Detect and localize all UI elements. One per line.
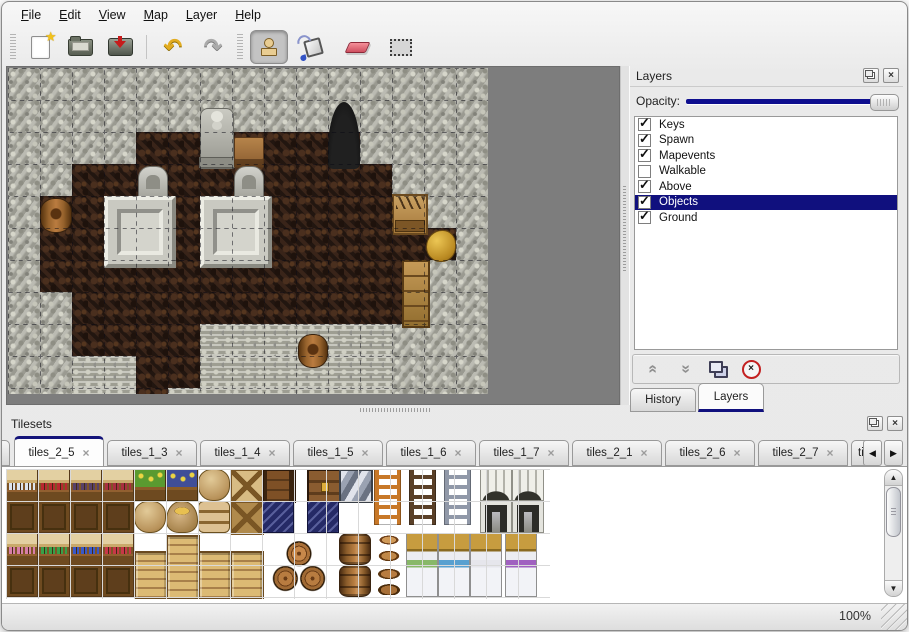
map-tile-stone-wall[interactable] (456, 100, 488, 132)
map-tile-dark-floor[interactable] (136, 292, 168, 324)
map-tile-dark-floor[interactable] (136, 356, 168, 388)
palette-tile-ladder[interactable] (374, 469, 401, 525)
map-tile-stone-wall[interactable] (40, 132, 72, 164)
palette-tile-archtop[interactable] (512, 469, 544, 501)
map-tile-dark-floor[interactable] (104, 292, 136, 324)
map-tile-stone-rubble[interactable] (328, 356, 360, 388)
lower-layer-button[interactable]: » (673, 358, 697, 380)
map-object-barrel[interactable] (298, 334, 329, 368)
tileset-tab-tiles_2_5[interactable]: tiles_2_5× (14, 436, 104, 466)
map-tile-stone-wall[interactable] (424, 132, 456, 164)
map-tile-stone-wall[interactable] (8, 292, 40, 324)
map-object-tombslab[interactable] (104, 196, 176, 268)
map-object-headstone[interactable] (234, 166, 265, 200)
tab-label: tiles_2_5 (28, 447, 74, 459)
map-tile-stone-rubble[interactable] (168, 388, 200, 394)
map-tile-stone-wall[interactable] (8, 324, 40, 356)
tilesets-panel-title: Tilesets (11, 417, 52, 431)
map-tile-stone-wall[interactable] (424, 324, 456, 356)
tileset-tab-tiles_1_6[interactable]: tiles_1_6× (386, 440, 476, 466)
map-tile-dark-floor[interactable] (136, 324, 168, 356)
palette-tile-navy[interactable] (307, 501, 339, 533)
palette-tile-shelf[interactable] (70, 533, 102, 597)
stamp-tool-button[interactable] (250, 30, 288, 64)
toolbar: ★↶↷ (2, 28, 907, 66)
layer-visibility-checkbox[interactable]: ✓ (638, 196, 651, 209)
palette-tile-crate[interactable] (198, 551, 232, 599)
layer-row-walkable[interactable]: Walkable (635, 164, 897, 180)
map-tile-stone-rubble[interactable] (296, 388, 328, 394)
map-tile-dark-floor[interactable] (136, 388, 168, 394)
tab-close-icon[interactable]: × (734, 447, 741, 459)
palette-tile-pyramid[interactable] (268, 536, 330, 595)
map-tile-stone-wall[interactable] (456, 388, 488, 394)
palette-tile-shelf[interactable] (6, 533, 38, 597)
tileset-tab-tiles_2_7[interactable]: tiles_2_7× (758, 440, 848, 466)
map-tile-dark-floor[interactable] (168, 324, 200, 356)
map-tile-stone-wall[interactable] (40, 100, 72, 132)
zoom-level: 100% (839, 609, 871, 623)
map-tile-dark-floor[interactable] (168, 292, 200, 324)
map-tile-dark-floor[interactable] (104, 164, 136, 196)
stamp-icon (261, 38, 277, 56)
map-tile-dark-floor[interactable] (360, 228, 392, 260)
map-tile-stone-wall[interactable] (328, 68, 360, 100)
map-tile-stone-wall[interactable] (424, 196, 456, 228)
tab-label: tiles_2_7 (772, 447, 818, 459)
opacity-slider-handle[interactable] (870, 94, 899, 111)
map-tile-stone-wall[interactable] (104, 132, 136, 164)
map-object-tombslab[interactable] (200, 196, 272, 268)
map-tile-stone-wall[interactable] (392, 388, 424, 394)
map-object-headstone[interactable] (138, 166, 169, 200)
tileset-tab-tiles_1_3[interactable]: tiles_1_3× (107, 440, 197, 466)
map-tile-stone-wall[interactable] (8, 388, 40, 394)
map-tile-stone-wall[interactable] (232, 68, 264, 100)
map-tile-stone-rubble[interactable] (264, 356, 296, 388)
resize-grip[interactable] (881, 604, 907, 630)
scroll-up-button[interactable]: ▲ (885, 470, 902, 486)
layer-row-keys[interactable]: ✓Keys (635, 117, 897, 133)
palette-tile-pots[interactable] (374, 533, 404, 595)
palette-tile-chestfront[interactable] (307, 469, 341, 503)
palette-tile-archdoor[interactable] (480, 501, 512, 533)
map-tile-stone-rubble[interactable] (360, 356, 392, 388)
map-tile-stone-wall[interactable] (424, 68, 456, 100)
map-tile-dark-floor[interactable] (72, 228, 104, 260)
layer-row-mapevents[interactable]: ✓Mapevents (635, 148, 897, 164)
close-panel-button[interactable]: × (883, 68, 899, 83)
map-tile-dark-floor[interactable] (200, 292, 232, 324)
palette-tile-steelchest[interactable] (339, 469, 373, 503)
palette-tile-sack[interactable] (198, 469, 230, 501)
layer-name: Mapevents (659, 150, 715, 162)
layer-name: Spawn (659, 134, 694, 146)
tab-label: tiles_1_4 (214, 447, 260, 459)
map-tile-stone-wall[interactable] (104, 100, 136, 132)
tab-layers[interactable]: Layers (698, 383, 764, 412)
toolbar-separator (146, 35, 147, 59)
tileset-tab-partial[interactable] (2, 440, 10, 466)
palette-tile-shelf[interactable] (70, 469, 102, 533)
tab-label: tiles_1_6 (400, 447, 446, 459)
select-rect-icon (390, 39, 412, 56)
map-tile-stone-wall[interactable] (8, 196, 40, 228)
redo-icon: ↷ (204, 36, 222, 58)
close-icon: × (892, 419, 898, 429)
map-tile-stone-rubble[interactable] (328, 388, 360, 394)
tab-label: tiles_1_7 (493, 447, 539, 459)
duplicate-layer-button[interactable] (706, 358, 730, 380)
map-tile-stone-rubble[interactable] (72, 356, 104, 388)
map-tile-stone-wall[interactable] (8, 356, 40, 388)
layer-row-ground[interactable]: ✓Ground (635, 210, 897, 226)
map-tile-dark-floor[interactable] (40, 260, 72, 292)
palette-tile-archdoor[interactable] (512, 501, 544, 533)
map-tile-stone-wall[interactable] (392, 356, 424, 388)
palette-tile-shelf[interactable] (38, 533, 70, 597)
layers-panel-header-buttons: × (863, 68, 899, 83)
layer-row-above[interactable]: ✓Above (635, 179, 897, 195)
map-tile-stone-wall[interactable] (456, 132, 488, 164)
layer-row-spawn[interactable]: ✓Spawn (635, 133, 897, 149)
float-icon (871, 420, 879, 427)
palette-tile-shelf[interactable] (38, 469, 70, 533)
map-tile-stone-rubble[interactable] (264, 388, 296, 394)
map-canvas[interactable] (6, 66, 620, 405)
map-tile-stone-wall[interactable] (424, 100, 456, 132)
layer-name: Ground (659, 212, 697, 224)
palette-tile-shelf[interactable] (102, 469, 134, 533)
tab-label: tiles_2_1 (586, 447, 632, 459)
layers-panel-title: Layers (636, 69, 672, 83)
tab-close-icon[interactable]: × (83, 447, 90, 459)
map-tile-stone-rubble[interactable] (328, 324, 360, 356)
tileset-tab-tiles_1_4[interactable]: tiles_1_4× (200, 440, 290, 466)
map-tile-dark-floor[interactable] (136, 132, 168, 164)
palette-tile-chesttop[interactable] (262, 469, 296, 503)
map-tile-dark-floor[interactable] (104, 324, 136, 356)
map-tile-stone-wall[interactable] (168, 68, 200, 100)
toolbar-grip[interactable] (237, 34, 243, 60)
palette-tile-cratex[interactable] (230, 501, 264, 535)
palette-scrollbar[interactable]: ▲ ▼ (884, 469, 903, 597)
tab-label: tiles_1_5 (307, 447, 353, 459)
tab-close-icon[interactable]: × (269, 447, 276, 459)
layer-visibility-checkbox[interactable]: ✓ (638, 211, 651, 224)
map-tile-stone-wall[interactable] (104, 68, 136, 100)
palette-tile-navy[interactable] (262, 501, 294, 533)
redo-button[interactable]: ↷ (196, 32, 230, 62)
map-object-statue[interactable] (200, 108, 234, 169)
layer-list: ✓Keys✓Spawn✓MapeventsWalkable✓Above✓Obje… (634, 116, 898, 350)
map-tile-dark-floor[interactable] (296, 164, 328, 196)
menu-bar: FileEditViewMapLayerHelp (2, 2, 907, 28)
map-tile-stone-wall[interactable] (264, 68, 296, 100)
new-file-button[interactable]: ★ (23, 32, 57, 62)
float-panel-button[interactable] (863, 68, 879, 83)
map-tile-dark-floor[interactable] (296, 196, 328, 228)
map-tile-stone-wall[interactable] (360, 68, 392, 100)
layer-name: Keys (659, 119, 685, 131)
map-object-table[interactable] (234, 137, 265, 168)
palette-tile-bed[interactable] (438, 533, 470, 597)
map-tile-stone-wall[interactable] (40, 164, 72, 196)
map-tile-stone-wall[interactable] (8, 68, 40, 100)
map-tile-stone-wall[interactable] (296, 68, 328, 100)
map-tile-dark-floor[interactable] (296, 228, 328, 260)
palette-tile-sack[interactable] (134, 501, 166, 533)
map-object-goldsack[interactable] (426, 230, 457, 262)
tab-close-icon[interactable]: × (362, 447, 369, 459)
palette-tile-crate[interactable] (230, 551, 264, 599)
map-tile-stone-wall[interactable] (360, 100, 392, 132)
menu-item-help[interactable]: Help (226, 6, 270, 24)
tab-close-icon[interactable]: × (827, 447, 834, 459)
menu-item-file[interactable]: File (12, 6, 50, 24)
map-tile-dark-floor[interactable] (360, 196, 392, 228)
map-tile-stone-rubble[interactable] (232, 388, 264, 394)
menu-item-view[interactable]: View (90, 6, 135, 24)
map-tile-stone-wall[interactable] (456, 164, 488, 196)
scrollbar-thumb[interactable] (886, 487, 901, 537)
map-tile-stone-wall[interactable] (40, 324, 72, 356)
triangle-up-icon: ▲ (890, 473, 898, 482)
close-panel-button[interactable]: × (887, 416, 903, 431)
tilesets-panel-header-buttons: × (867, 416, 903, 431)
map-tile-dark-floor[interactable] (232, 292, 264, 324)
map-tile-stone-wall[interactable] (168, 100, 200, 132)
float-panel-button[interactable] (867, 416, 883, 431)
palette-tile-archtop[interactable] (480, 469, 512, 501)
map-editor-window: FileEditViewMapLayerHelp ★↶↷ Layers × Op… (1, 1, 908, 631)
map-tile-stone-rubble[interactable] (104, 388, 136, 394)
open-folder-icon (68, 39, 93, 56)
layer-name: Above (659, 181, 692, 193)
map-tile-stone-wall[interactable] (136, 68, 168, 100)
map-tile-stone-wall[interactable] (296, 100, 328, 132)
double-chevron-up-icon: « (643, 365, 661, 374)
map-tile-stone-wall[interactable] (456, 356, 488, 388)
map-tile-stone-wall[interactable] (424, 388, 456, 394)
map-tile-stone-wall[interactable] (8, 164, 40, 196)
map-tile-stone-wall[interactable] (424, 164, 456, 196)
undo-button[interactable]: ↶ (156, 32, 190, 62)
menu-item-edit[interactable]: Edit (50, 6, 90, 24)
map-tile-stone-wall[interactable] (72, 100, 104, 132)
check-icon: ✓ (639, 208, 650, 224)
map-tile-stone-rubble[interactable] (232, 324, 264, 356)
tab-close-icon[interactable]: × (641, 447, 648, 459)
map-tile-stone-wall[interactable] (40, 356, 72, 388)
map-tile-stone-wall[interactable] (392, 324, 424, 356)
map-tile-dark-floor[interactable] (296, 292, 328, 324)
palette-tile-planter[interactable] (134, 469, 166, 501)
layer-row-objects[interactable]: ✓Objects (635, 195, 897, 211)
palette-tile-ladder[interactable] (444, 469, 471, 525)
map-tile-dark-floor[interactable] (360, 260, 392, 292)
tileset-tab-tiles_2_6[interactable]: tiles_2_6× (665, 440, 755, 466)
select-rect-tool-button[interactable] (382, 30, 420, 64)
palette-tile-crate[interactable] (134, 551, 168, 599)
map-tile-stone-wall[interactable] (392, 68, 424, 100)
layer-name: Walkable (659, 165, 706, 177)
map-tile-stone-rubble[interactable] (200, 324, 232, 356)
map-object-cratetools[interactable] (392, 194, 428, 235)
palette-tile-bed[interactable] (505, 533, 537, 597)
map-tile-dark-floor[interactable] (328, 164, 360, 196)
tileset-tab-tiles_1_7[interactable]: tiles_1_7× (479, 440, 569, 466)
tab-close-icon[interactable]: × (455, 447, 462, 459)
palette-tile-crate[interactable] (166, 535, 200, 599)
tab-close-icon[interactable]: × (548, 447, 555, 459)
map-tile-stone-wall[interactable] (72, 68, 104, 100)
palette-tile-bed[interactable] (470, 533, 502, 597)
map-tile-stone-wall[interactable] (264, 100, 296, 132)
map-tile-dark-floor[interactable] (72, 260, 104, 292)
scroll-tabs-right-button[interactable]: ▶ (884, 440, 903, 466)
map-tile-stone-rubble[interactable] (232, 356, 264, 388)
map-tile-dark-floor[interactable] (168, 132, 200, 164)
map-tile-dark-floor[interactable] (264, 164, 296, 196)
map-tile-dark-floor[interactable] (264, 132, 296, 164)
palette-tile-sackopen[interactable] (166, 501, 198, 533)
palette-tile-cratex[interactable] (230, 469, 264, 503)
map-tile-stone-wall[interactable] (8, 228, 40, 260)
raise-layer-button[interactable]: « (640, 358, 664, 380)
map-tile-stone-wall[interactable] (40, 68, 72, 100)
map-tile-stone-rubble[interactable] (200, 388, 232, 394)
save-icon (108, 38, 133, 56)
layer-visibility-checkbox[interactable]: ✓ (638, 134, 651, 147)
scroll-tabs-left-button[interactable]: ◀ (863, 440, 882, 466)
map-tile-stone-wall[interactable] (8, 132, 40, 164)
map-tile-dark-floor[interactable] (328, 292, 360, 324)
tab-history[interactable]: History (630, 388, 696, 412)
palette-tile-shelf[interactable] (102, 533, 134, 597)
layer-visibility-checkbox[interactable]: ✓ (638, 180, 651, 193)
map-tile-stone-wall[interactable] (456, 292, 488, 324)
map-tile-stone-wall[interactable] (40, 388, 72, 394)
triangle-right-icon: ▶ (890, 448, 897, 459)
layers-panel-header: Layers × (630, 66, 903, 87)
map-tile-dark-floor[interactable] (360, 164, 392, 196)
palette-tile-ladder[interactable] (409, 469, 436, 525)
map-object-cabinet[interactable] (402, 260, 430, 328)
map-tile-stone-rubble[interactable] (264, 324, 296, 356)
palette-tile-barrel[interactable] (339, 533, 371, 565)
map-tile-stone-wall[interactable] (456, 228, 488, 260)
layers-panel: Layers × Opacity: ✓Keys✓Spawn✓MapeventsW… (630, 66, 903, 412)
fill-bucket-tool-button[interactable] (294, 30, 332, 64)
palette-tile-planter[interactable] (166, 469, 198, 501)
tab-label: tiles_1_3 (121, 447, 167, 459)
tileset-tab-tiles_2_1[interactable]: tiles_2_1× (572, 440, 662, 466)
tileset-tab-bar: tiles_2_5×tiles_1_3×tiles_1_4×tiles_1_5×… (2, 435, 867, 466)
map-tile-dark-floor[interactable] (328, 228, 360, 260)
map-tile-stone-wall[interactable] (456, 68, 488, 100)
tileset-palette[interactable]: ▲ ▼ (2, 466, 907, 607)
map-tile-dark-floor[interactable] (328, 260, 360, 292)
map-tile-dark-floor[interactable] (360, 292, 392, 324)
map-tile-dark-floor[interactable] (264, 292, 296, 324)
map-tile-dark-floor[interactable] (72, 292, 104, 324)
opacity-slider[interactable] (686, 90, 899, 112)
map-tile-stone-rubble[interactable] (72, 388, 104, 394)
map-tile-stone-wall[interactable] (360, 132, 392, 164)
palette-tile-sackstack[interactable] (198, 501, 230, 533)
map-tile-dark-floor[interactable] (328, 196, 360, 228)
opacity-label: Opacity: (636, 94, 680, 108)
open-folder-button[interactable] (63, 32, 97, 62)
map-tile-dark-floor[interactable] (72, 196, 104, 228)
palette-tile-bed[interactable] (406, 533, 438, 597)
map-tile-dark-floor[interactable] (72, 164, 104, 196)
eraser-tool-button[interactable] (338, 30, 376, 64)
float-icon (867, 72, 875, 79)
status-bar: 100% (2, 603, 907, 630)
triangle-down-icon: ▼ (890, 584, 898, 593)
layer-visibility-checkbox[interactable]: ✓ (638, 118, 651, 131)
delete-layer-button[interactable]: × (739, 358, 763, 380)
map-tile-stone-wall[interactable] (232, 100, 264, 132)
map-tile-stone-wall[interactable] (392, 100, 424, 132)
menu-item-layer[interactable]: Layer (177, 6, 226, 24)
palette-tile-shelf[interactable] (6, 469, 38, 533)
menu-item-map[interactable]: Map (135, 6, 177, 24)
map-tile-dark-floor[interactable] (72, 324, 104, 356)
scroll-down-button[interactable]: ▼ (885, 580, 902, 596)
map-tile-dark-floor[interactable] (168, 356, 200, 388)
map-tile-stone-rubble[interactable] (360, 324, 392, 356)
map-tile-stone-wall[interactable] (424, 356, 456, 388)
map-tile-stone-wall[interactable] (456, 196, 488, 228)
map-tile-dark-floor[interactable] (168, 164, 200, 196)
triangle-left-icon: ◀ (869, 448, 876, 459)
map-tile-stone-wall[interactable] (456, 260, 488, 292)
map-tile-stone-wall[interactable] (392, 132, 424, 164)
tileset-tab-tiles_1_5[interactable]: tiles_1_5× (293, 440, 383, 466)
map-tile-stone-wall[interactable] (40, 292, 72, 324)
check-icon: ✓ (639, 177, 650, 193)
layer-visibility-checkbox[interactable] (638, 165, 651, 178)
palette-tile-barrel[interactable] (339, 565, 371, 597)
map-tile-stone-wall[interactable] (8, 260, 40, 292)
map-tile-stone-wall[interactable] (392, 164, 424, 196)
check-icon: ✓ (639, 146, 650, 162)
double-chevron-down-icon: » (676, 365, 694, 374)
opacity-slider-track[interactable] (686, 99, 895, 104)
tab-close-icon[interactable]: × (176, 447, 183, 459)
toolbar-grip[interactable] (10, 34, 16, 60)
layer-buttons-row: «»× (632, 354, 900, 384)
map-tile-stone-wall[interactable] (136, 100, 168, 132)
map-tile-dark-floor[interactable] (296, 132, 328, 164)
tab-scroll-buttons: ◀ ▶ (863, 440, 903, 466)
map-tile-stone-wall[interactable] (72, 132, 104, 164)
map-tile-stone-rubble[interactable] (200, 356, 232, 388)
map-tile-stone-wall[interactable] (8, 100, 40, 132)
map-tile-stone-wall[interactable] (200, 68, 232, 100)
save-button[interactable] (103, 32, 137, 62)
map-object-barrel[interactable] (40, 198, 72, 234)
map-tile-dark-floor[interactable] (296, 260, 328, 292)
map-tile-stone-wall[interactable] (456, 324, 488, 356)
layer-visibility-checkbox[interactable]: ✓ (638, 149, 651, 162)
map-tile-stone-rubble[interactable] (360, 388, 392, 394)
vertical-splitter[interactable] (620, 66, 630, 405)
map-tile-stone-rubble[interactable] (104, 356, 136, 388)
